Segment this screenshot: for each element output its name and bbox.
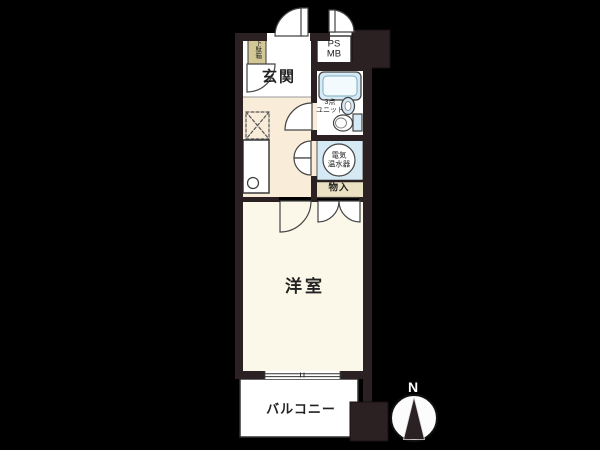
floor-plan-drawing <box>0 0 600 450</box>
unit-bath-line2: ユニット <box>316 107 344 115</box>
unit-bath-label: 3点 ユニット <box>316 99 344 115</box>
bathtub-icon <box>319 72 361 100</box>
water-heater-label: 電気 温水器 <box>328 151 351 170</box>
wall-bottom-left <box>235 371 264 379</box>
toilet-icon <box>334 114 363 131</box>
wall-above-bath <box>311 62 372 71</box>
wall-bath-heater <box>311 135 363 141</box>
wall-right <box>363 64 372 405</box>
window-sliding <box>264 371 341 379</box>
genkan-label: 玄関 <box>262 68 296 85</box>
north-compass <box>391 395 437 441</box>
wall-top-left <box>235 33 267 41</box>
balcony-label: バルコニー <box>266 403 336 418</box>
ps-mb-label: PS MB <box>327 40 341 61</box>
wall-left <box>235 33 243 379</box>
storage-label: 物入 <box>328 184 349 195</box>
mb-label: MB <box>327 50 341 60</box>
wall-bottom-corner-block <box>350 402 388 441</box>
unit-bath-line1: 3点 <box>316 99 344 107</box>
kitchen-sink-icon <box>248 178 259 189</box>
floor-plan: 玄関 下駄箱 PS MB 3点 ユニット 電気 温水器 物入 洋室 バルコニー … <box>0 0 600 450</box>
wall-genkan-bath <box>311 41 317 103</box>
shoe-cabinet-label: 下駄箱 <box>253 39 260 59</box>
north-label: N <box>408 379 418 395</box>
wall-kitchen-room-right <box>359 197 372 202</box>
wall-kitchen-room-left <box>235 197 279 202</box>
wall-kitchen-room-mid <box>311 197 317 202</box>
water-heater-line1: 電気 <box>328 151 351 160</box>
entrance-door-arc <box>275 8 308 36</box>
water-heater-line2: 温水器 <box>328 160 351 169</box>
wall-bottom-right <box>341 371 372 379</box>
room-label: 洋室 <box>285 277 325 297</box>
meterbox-door-arc <box>329 10 354 32</box>
